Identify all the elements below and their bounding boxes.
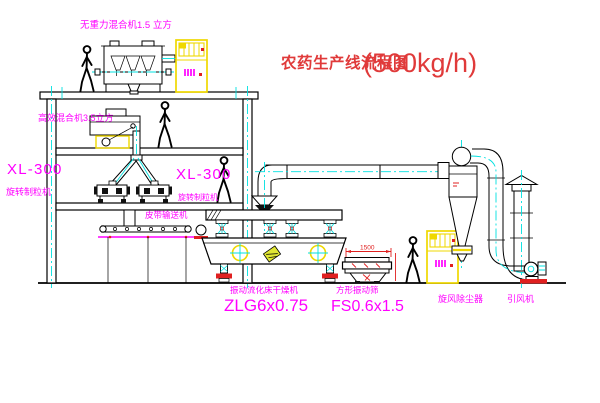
label-granulator-left-model: XL-300 [7, 161, 63, 178]
diagram-canvas: 农药生产线流程图 (500kg/h) 无重力混合机1.5 立方 高效混合机3.5… [0, 0, 600, 403]
cad-flow-diagram: 农药生产线流程图 (500kg/h) 无重力混合机1.5 立方 高效混合机3.5… [0, 0, 600, 403]
gravity-free-mixer [92, 41, 177, 94]
vibrating-sieve [343, 248, 396, 283]
label-sieve-model: FS0.6x1.5 [331, 298, 404, 315]
feed-duct [252, 162, 448, 240]
label-gravity-mixer: 无重力混合机1.5 立方 [80, 19, 172, 31]
granulator-left [94, 181, 130, 203]
label-granulator-center-name: 旋转制粒机 [178, 192, 218, 202]
label-high-efficiency-mixer: 高效混合机3.5立方 [38, 112, 114, 123]
granulator-right [136, 181, 172, 203]
label-sieve-name: 方形振动筛 [336, 285, 379, 295]
title-capacity: (500kg/h) [363, 48, 477, 78]
label-granulator-center-model: XL-300 [176, 166, 232, 183]
person-ground [406, 237, 419, 282]
label-dryer-name: 振动流化床干燥机 [230, 285, 299, 295]
label-belt-conveyor: 皮带输送机 [145, 210, 188, 220]
label-fan: 引风机 [507, 293, 534, 304]
label-cyclone: 旋风除尘器 [438, 293, 483, 304]
label-sieve-dimension: 1500 [360, 245, 375, 252]
fluid-bed-dryer [202, 210, 346, 282]
person-level2 [158, 102, 171, 147]
belt-conveyor [98, 210, 208, 283]
control-cabinet-roof [176, 40, 207, 92]
control-cabinet-ground [427, 231, 458, 283]
label-dryer-model: ZLG6x0.75 [224, 296, 308, 315]
label-granulator-left-name: 旋转制粒机 [6, 186, 51, 197]
person-roof [80, 46, 93, 91]
